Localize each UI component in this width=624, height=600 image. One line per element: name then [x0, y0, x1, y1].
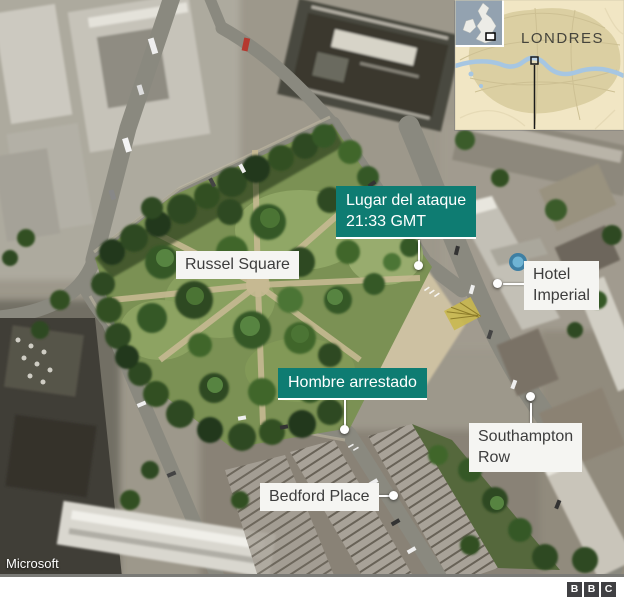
footer-bar: BBC — [0, 577, 624, 600]
bbc-logo-block-1: B — [567, 582, 582, 597]
hotel-leader-line — [503, 283, 524, 285]
attack-site-line1: Lugar del ataque — [346, 190, 466, 211]
hotel-marker-dot — [493, 279, 502, 288]
bbc-logo-block-3: C — [601, 582, 616, 597]
southampton-line2: Row — [478, 447, 573, 468]
news-map-graphic: Lugar del ataque 21:33 GMT Russel Square… — [0, 0, 624, 600]
southampton-leader-line — [530, 403, 532, 423]
bedford-label: Bedford Place — [269, 486, 370, 507]
map-attribution: Microsoft — [6, 556, 59, 571]
inset-location-marker — [531, 57, 538, 64]
uk-minimap — [455, 0, 503, 46]
attack-site-line2: 21:33 GMT — [346, 211, 466, 232]
locator-inset-map: LONDRES — [455, 0, 624, 130]
arrest-marker-dot — [340, 425, 349, 434]
attack-leader-line — [418, 240, 420, 263]
inset-city-label: LONDRES — [521, 30, 604, 47]
bbc-logo-block-2: B — [584, 582, 599, 597]
callout-southampton-row: Southampton Row — [469, 423, 582, 472]
southampton-line1: Southampton — [478, 426, 573, 447]
callout-bedford-place: Bedford Place — [260, 483, 379, 511]
callout-attack-site: Lugar del ataque 21:33 GMT — [336, 186, 476, 239]
park-name-label: Russel Square — [185, 254, 290, 275]
uk-minimap-london-marker — [486, 33, 495, 40]
attack-marker-dot — [414, 261, 423, 270]
bbc-logo: BBC — [565, 579, 616, 597]
hotel-line1: Hotel — [533, 264, 590, 285]
arrest-leader-line — [344, 398, 346, 426]
callout-hotel: Hotel Imperial — [524, 261, 599, 310]
southampton-marker-dot — [526, 392, 535, 401]
hotel-line2: Imperial — [533, 285, 590, 306]
inset-map-graphic — [455, 0, 624, 130]
arrest-label: Hombre arrestado — [288, 372, 417, 393]
bedford-marker-dot — [389, 491, 398, 500]
callout-park-name: Russel Square — [176, 251, 299, 279]
callout-arrest: Hombre arrestado — [278, 368, 427, 400]
